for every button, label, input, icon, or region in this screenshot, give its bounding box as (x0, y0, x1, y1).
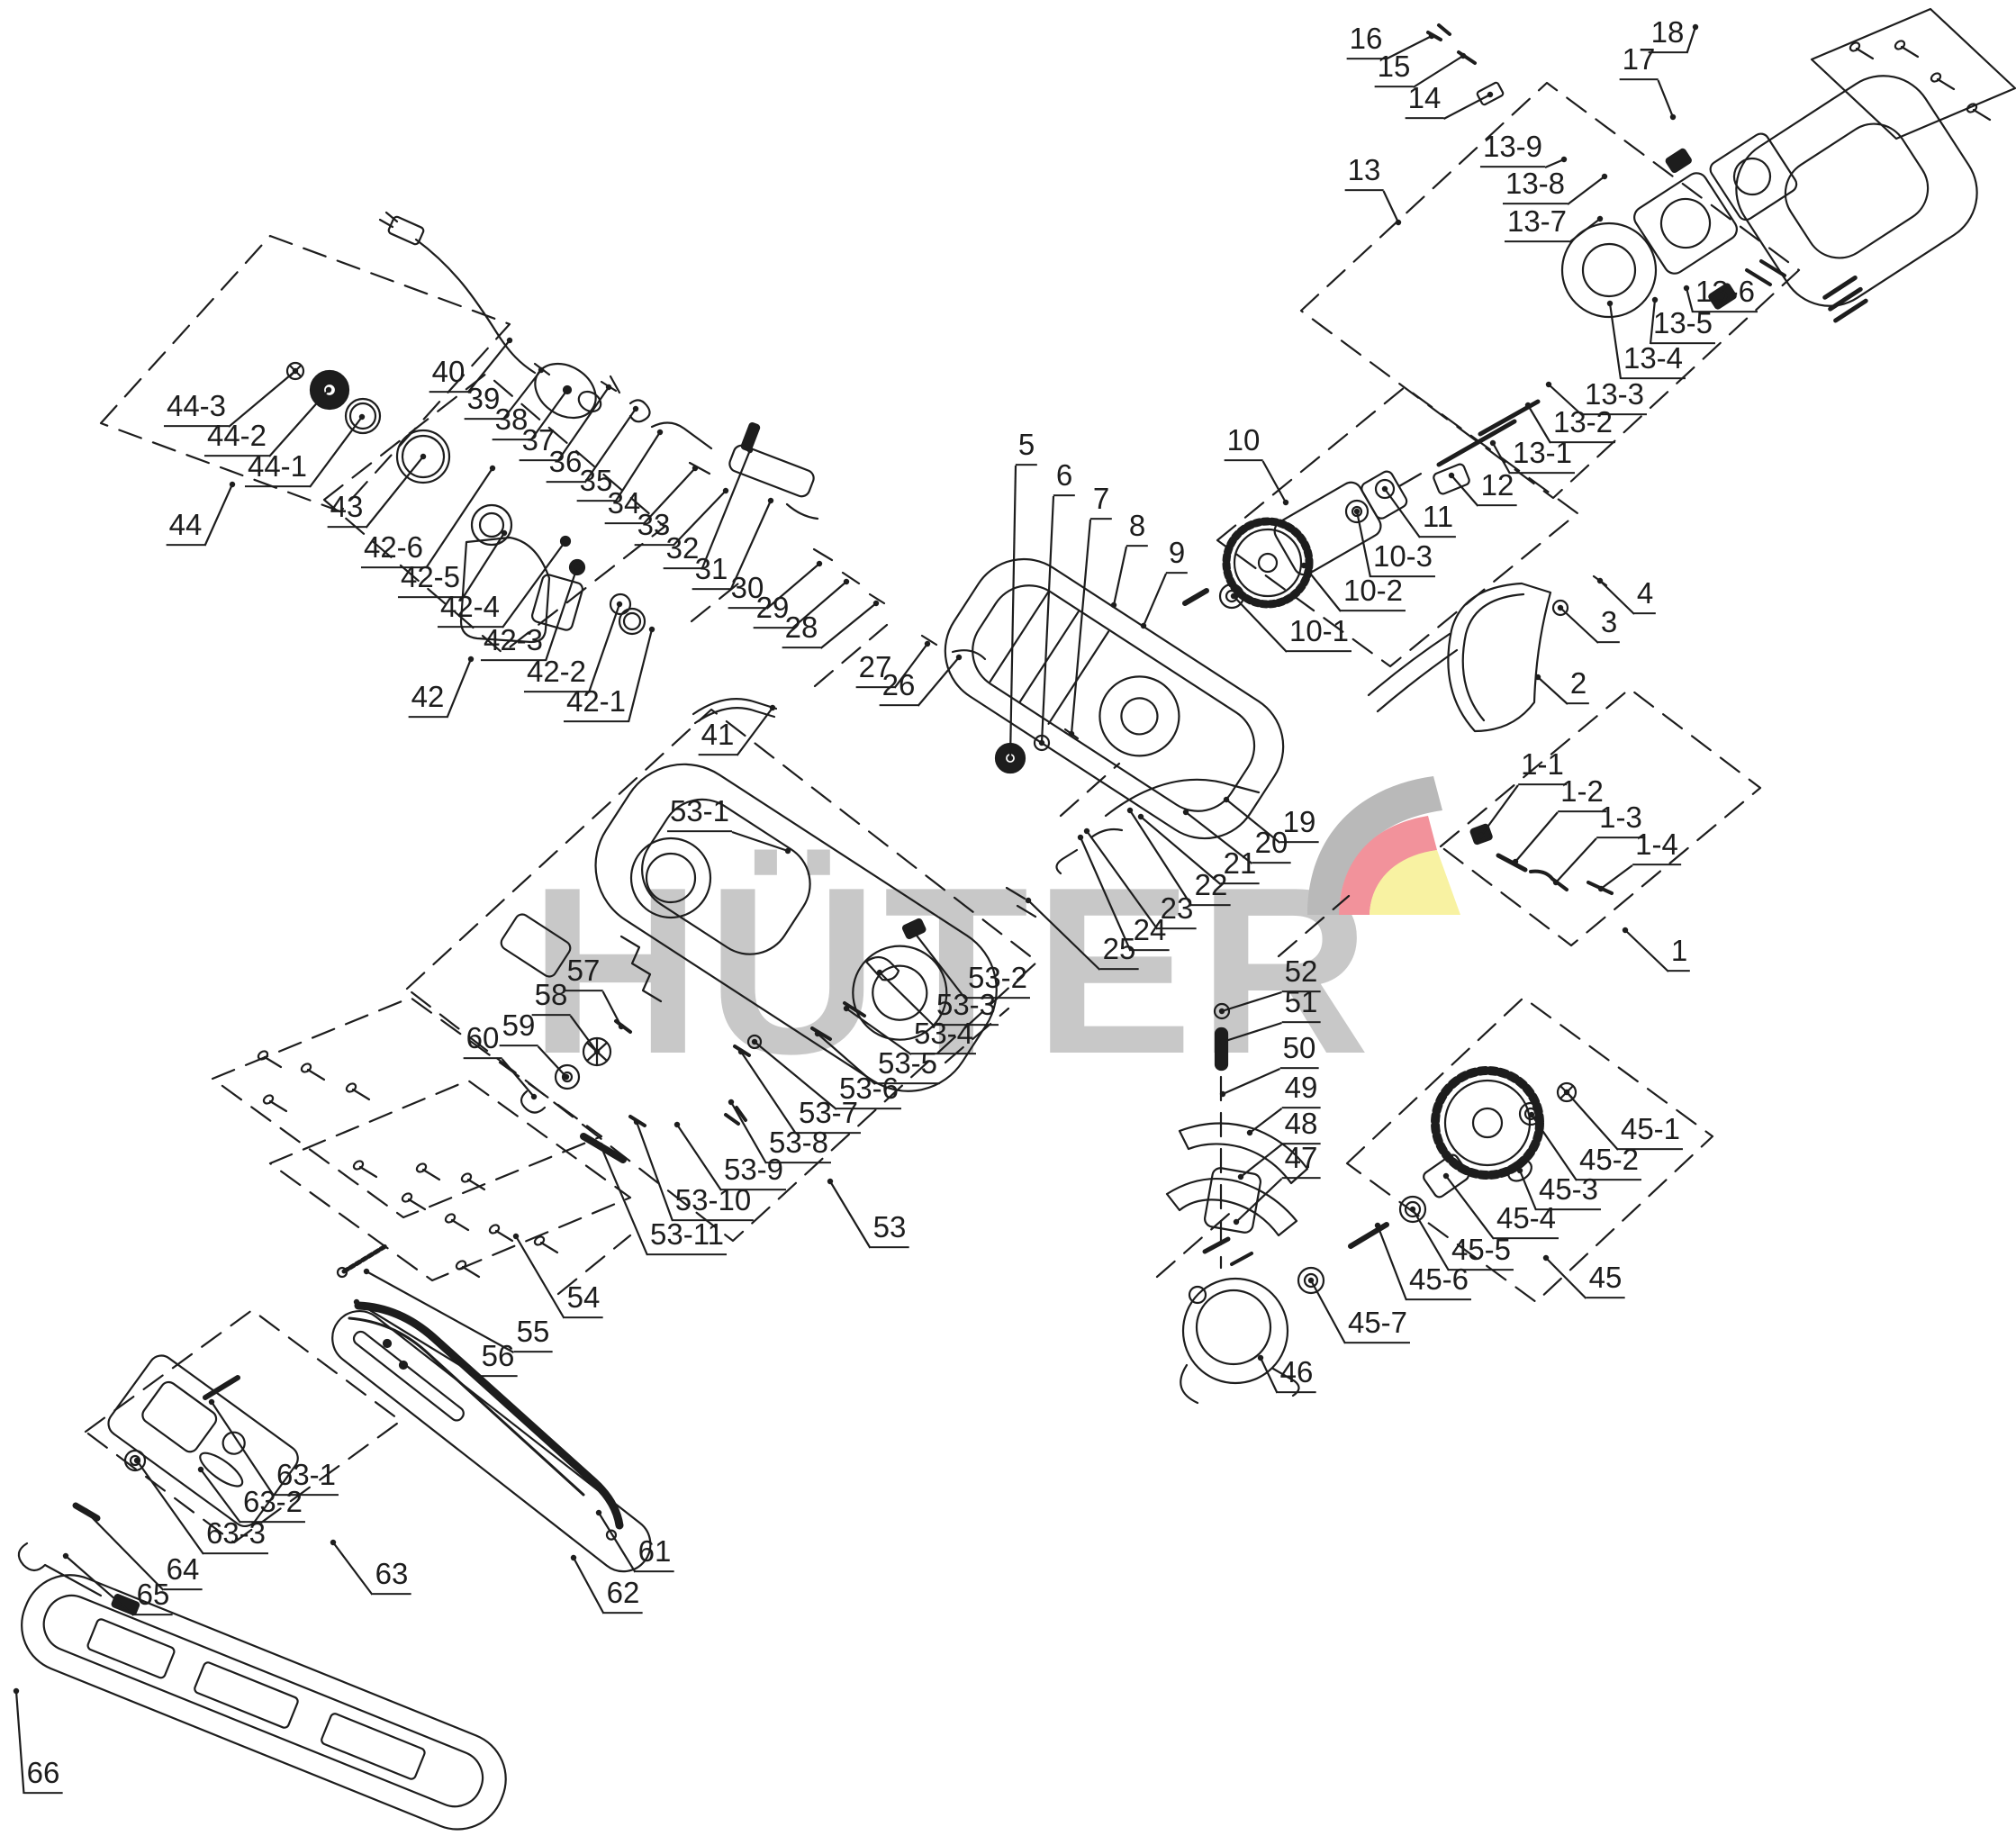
part-label: 13-3 (1582, 378, 1647, 415)
leader-line (1223, 1069, 1280, 1094)
part-label: 10 (1225, 424, 1263, 461)
leader-dot (571, 1555, 576, 1560)
leader-line (502, 541, 565, 628)
leader-dot (1478, 833, 1484, 838)
part-label: 60 (464, 1022, 502, 1059)
leader-dot (538, 367, 544, 373)
leader-dot (594, 1049, 600, 1054)
leader-line (1538, 677, 1568, 704)
part-label: 8 (1126, 510, 1148, 547)
leader-dot (1375, 1223, 1380, 1228)
leader-line (628, 629, 652, 722)
leader-dot (1283, 500, 1288, 505)
leader-dot (785, 848, 791, 854)
leader-line (1444, 95, 1491, 119)
leader-dot (1513, 859, 1518, 864)
leader-line (447, 659, 472, 718)
leader-dot (1517, 1168, 1523, 1173)
leader-line (741, 1052, 796, 1134)
leader-dot (468, 656, 474, 662)
leader-dot (1224, 797, 1229, 802)
stator (1562, 131, 1800, 317)
leader-dot (657, 430, 663, 435)
leader-dot (925, 641, 930, 647)
leader-dot (359, 414, 365, 420)
part-label: 66 (24, 1757, 63, 1794)
exploded-diagram-page: HÜTER (0, 0, 2016, 1845)
leader-line (737, 708, 773, 755)
leader-dot (649, 627, 655, 632)
leader-dot (1026, 898, 1031, 903)
leader-dot (1487, 92, 1493, 97)
part-label: 13-4 (1621, 342, 1686, 379)
leader-dot (230, 482, 235, 487)
leader-dot (134, 1458, 140, 1463)
motor-housing (925, 538, 1304, 859)
leader-dot (1220, 1039, 1225, 1045)
leader-dot (1670, 114, 1676, 120)
leader-dot (1597, 578, 1603, 583)
part-label: 3 (1598, 606, 1620, 643)
leader-dot (1684, 285, 1689, 291)
leader-dot (738, 1049, 744, 1054)
leader-dot (770, 705, 775, 710)
part-label: 65 (134, 1578, 173, 1615)
part-label: 44 (167, 509, 205, 546)
leader-dot (827, 1179, 833, 1184)
leader-line (205, 484, 233, 546)
leader-line (1311, 1280, 1345, 1343)
screw-set (257, 1050, 557, 1277)
leader-line (201, 1470, 240, 1523)
part-label: 46 (1278, 1356, 1316, 1393)
part-label: 59 (500, 1009, 538, 1046)
part-label: 63-3 (203, 1517, 268, 1554)
leader-dot (1602, 174, 1607, 179)
part-label: 43 (328, 491, 366, 528)
leader-dot (768, 498, 773, 503)
leader-dot (565, 387, 570, 393)
leader-dot (1598, 886, 1604, 891)
leader-line (1546, 1258, 1587, 1298)
leader-dot (723, 488, 728, 493)
part-label: 61 (636, 1535, 674, 1572)
leader-dot (844, 579, 849, 584)
leader-dot (1039, 740, 1044, 746)
part-label: 12 (1478, 469, 1517, 506)
leader-dot (1308, 1278, 1314, 1283)
leader-dot (63, 1553, 68, 1559)
leader-dot (877, 970, 882, 975)
leader-dot (1429, 33, 1434, 39)
brush-parts (1470, 824, 1612, 893)
part-label: 5 (1016, 429, 1037, 466)
part-label: 54 (565, 1281, 603, 1318)
leader-dot (1219, 1008, 1225, 1014)
bar-scabbard (7, 1561, 520, 1844)
part-label: 42-3 (481, 624, 546, 661)
leader-dot (1231, 593, 1236, 599)
leader-dot (563, 538, 568, 544)
part-label: 10-3 (1370, 540, 1435, 577)
part-label: 11 (1420, 501, 1456, 538)
leader-dot (1693, 24, 1698, 30)
part-label: 7 (1090, 483, 1112, 520)
leader-line (1144, 574, 1166, 626)
part-label: 22 (1192, 869, 1231, 906)
part-label: 56 (479, 1340, 518, 1377)
leader-dot (1443, 1173, 1449, 1179)
leader-dot (1234, 1219, 1239, 1225)
leader-dot (1553, 880, 1559, 885)
leader-dot (531, 1094, 537, 1099)
leader-dot (513, 1234, 519, 1239)
leader-dot (1449, 473, 1454, 478)
leader-dot (83, 1508, 88, 1514)
tensioner-cover (19, 1351, 303, 1596)
part-label: 6 (1053, 459, 1075, 496)
leader-dot (752, 1039, 757, 1045)
leader-line (1071, 520, 1090, 734)
leader-dot (598, 1143, 603, 1148)
part-label: 10-1 (1287, 615, 1352, 652)
leader-line (1515, 812, 1558, 862)
leader-line (1028, 900, 1100, 970)
leader-line (538, 1046, 567, 1077)
handle-plate (1812, 9, 2015, 139)
part-label: 13-7 (1505, 205, 1569, 242)
leader-line (1413, 1209, 1449, 1271)
leader-dot (330, 1540, 336, 1545)
part-label: 4 (1634, 577, 1656, 614)
leader-dot (1078, 835, 1083, 840)
leader-dot (1354, 509, 1360, 514)
leader-line (516, 1236, 565, 1318)
leader-dot (490, 466, 495, 471)
part-label: 42 (409, 681, 447, 718)
leader-dot (1138, 814, 1144, 819)
leader-line (357, 1302, 479, 1377)
leader-line (546, 567, 577, 661)
leader-dot (617, 601, 622, 607)
part-label: 53-10 (673, 1184, 754, 1221)
part-label: 13-8 (1503, 167, 1568, 204)
leader-line (1560, 608, 1598, 643)
leader-dot (293, 368, 298, 374)
leader-dot (1535, 674, 1541, 680)
leader-line (1625, 930, 1668, 972)
part-label: 13 (1345, 154, 1384, 191)
leader-dot (1652, 297, 1658, 303)
leader-dot (619, 1024, 624, 1029)
leader-dot (633, 406, 638, 412)
leader-dot (873, 601, 879, 606)
part-label: 48 (1282, 1108, 1321, 1144)
leader-dot (1258, 1355, 1263, 1361)
leader-dot (198, 1467, 203, 1472)
leader-dot (1396, 220, 1401, 225)
leader-dot (1525, 402, 1531, 408)
leader-dot (1543, 1255, 1549, 1261)
leader-dot (1460, 53, 1466, 59)
part-label: 1-4 (1632, 828, 1681, 865)
leader-dot (564, 1074, 569, 1080)
leader-line (66, 1556, 134, 1615)
part-label: 52 (1282, 955, 1321, 992)
leader-line (1569, 219, 1600, 242)
part-label: 53 (871, 1211, 909, 1248)
part-label: 39 (465, 383, 503, 420)
part-label: 53-1 (667, 795, 732, 832)
side-cover (499, 739, 1022, 1160)
part-label: 16 (1347, 23, 1386, 59)
part-label: 13-9 (1480, 131, 1545, 167)
part-label: 42-6 (361, 531, 426, 568)
leader-dot (728, 1099, 734, 1105)
leader-dot (844, 1006, 849, 1011)
part-label: 13-6 (1693, 276, 1758, 312)
leader-dot (1558, 605, 1563, 610)
leader-line (1223, 1023, 1282, 1042)
spur-gear-set (1298, 1071, 1576, 1293)
part-label: 47 (1282, 1142, 1321, 1179)
leader-dot (606, 384, 611, 390)
leader-dot (1238, 1174, 1243, 1180)
leader-line (1687, 27, 1696, 53)
part-label: 44-3 (164, 390, 229, 427)
leader-dot (1220, 1091, 1225, 1097)
leader-dot (956, 655, 962, 660)
leader-dot (674, 1122, 680, 1127)
leader-dot (1127, 808, 1133, 813)
brand-swoosh (1307, 776, 1460, 915)
leader-line (1250, 1108, 1282, 1133)
part-label: 2 (1568, 667, 1589, 704)
leader-dot (507, 338, 512, 343)
group-outlines (86, 83, 1799, 1542)
part-label: 53-11 (647, 1218, 727, 1255)
leader-line (1042, 496, 1053, 743)
part-label: 25 (1100, 933, 1139, 970)
leader-line (1384, 191, 1399, 222)
leader-line (269, 390, 329, 457)
part-label: 9 (1166, 537, 1188, 574)
leader-dot (1084, 828, 1089, 834)
leader-line (1378, 1225, 1406, 1300)
leader-line (1304, 565, 1341, 611)
leader-line (1446, 1176, 1494, 1239)
part-label: 30 (728, 572, 767, 609)
leader-line (589, 604, 619, 692)
leader-line (574, 1558, 604, 1614)
leader-line (502, 1059, 535, 1097)
part-label: 50 (1280, 1032, 1319, 1069)
leader-line (1010, 466, 1016, 758)
leader-dot (209, 1399, 214, 1405)
leader-dot (692, 466, 698, 471)
leader-dot (815, 1031, 820, 1036)
leader-dot (1410, 1207, 1415, 1212)
leader-dot (326, 387, 331, 393)
leader-line (1263, 461, 1287, 502)
part-label: 1 (1668, 935, 1690, 972)
leader-dot (1382, 486, 1388, 492)
part-label: 55 (514, 1316, 553, 1352)
leader-dot (1008, 755, 1013, 761)
leader-dot (1607, 301, 1613, 306)
leader-dot (596, 1510, 601, 1515)
part-label: 45-6 (1406, 1263, 1471, 1300)
leader-dot (1183, 809, 1189, 815)
leader-dot (1561, 157, 1567, 162)
leader-dot (1623, 927, 1628, 933)
leader-line (1659, 80, 1674, 117)
part-label: 40 (429, 356, 468, 393)
leader-dot (817, 561, 822, 566)
leader-line (16, 1691, 24, 1794)
leader-dot (1597, 216, 1603, 222)
leader-dot (1529, 1112, 1534, 1117)
leader-dot (1111, 602, 1116, 608)
leader-dot (364, 1269, 369, 1274)
part-label: 63 (373, 1558, 411, 1595)
leader-line (1601, 865, 1632, 889)
leader-line (1222, 992, 1282, 1011)
leader-dot (1490, 440, 1496, 446)
leader-dot (574, 565, 580, 570)
leader-dot (420, 454, 426, 459)
leader-line (1481, 785, 1518, 836)
part-label: 45 (1587, 1262, 1625, 1298)
leader-line (821, 603, 877, 648)
part-label: 10-2 (1341, 574, 1406, 611)
leader-line (918, 657, 960, 706)
part-label: 41 (699, 719, 737, 755)
leader-line (603, 991, 622, 1027)
leader-dot (502, 530, 507, 536)
part-label: 27 (856, 651, 895, 688)
leader-line (1556, 838, 1596, 882)
leader-dot (354, 1299, 359, 1305)
leader-dot (1564, 1090, 1569, 1095)
leader-line (366, 457, 424, 528)
leader-dot (1301, 563, 1306, 568)
leader-line (1568, 176, 1605, 204)
leader-line (333, 1542, 373, 1595)
leader-line (1114, 547, 1126, 605)
leader-line (1567, 1092, 1618, 1150)
part-label: 49 (1282, 1072, 1321, 1108)
leader-dot (911, 929, 917, 935)
leader-line (677, 1125, 721, 1190)
part-label: 45-7 (1345, 1307, 1410, 1343)
pinion-gear (996, 729, 1078, 773)
leader-line (830, 1181, 871, 1248)
part-label: 18 (1649, 16, 1687, 53)
part-label: 62 (604, 1577, 643, 1614)
leader-dot (1546, 382, 1551, 387)
leader-dot (634, 1119, 639, 1125)
leader-dot (1069, 731, 1074, 737)
leader-dot (747, 448, 753, 453)
leader-dot (14, 1688, 19, 1694)
leader-line (1610, 303, 1621, 379)
leader-dot (1247, 1130, 1252, 1135)
leader-dot (1141, 623, 1146, 629)
